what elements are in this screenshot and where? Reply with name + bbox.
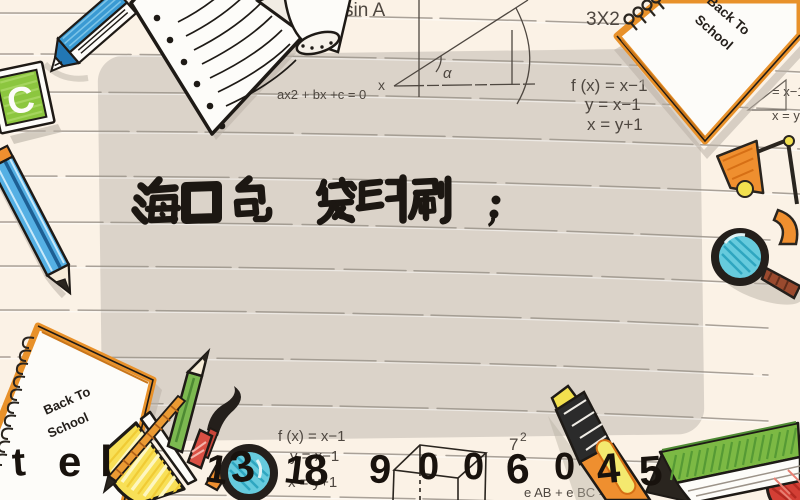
svg-text:0: 0: [463, 446, 484, 488]
svg-text:3X2: 3X2: [586, 9, 620, 30]
svg-text:0: 0: [554, 446, 575, 488]
svg-text:y = x−1: y = x−1: [585, 95, 641, 114]
svg-text:α: α: [443, 65, 452, 82]
svg-text:8: 8: [302, 445, 331, 496]
svg-text:9: 9: [367, 447, 392, 492]
svg-text:f (x) = x−1: f (x) = x−1: [571, 76, 648, 95]
svg-text:l: l: [100, 437, 112, 486]
svg-text:2: 2: [520, 430, 527, 444]
svg-text:0: 0: [418, 446, 439, 488]
svg-text:x: x: [378, 77, 385, 93]
svg-text:e: e: [58, 438, 81, 485]
svg-text:x = y+1: x = y+1: [587, 115, 643, 134]
svg-text:5: 5: [637, 446, 664, 495]
svg-text:ax2 + bx +c = 0: ax2 + bx +c = 0: [277, 87, 366, 102]
svg-text:6: 6: [504, 444, 531, 493]
svg-text:f (x) = x−1: f (x) = x−1: [278, 428, 346, 445]
